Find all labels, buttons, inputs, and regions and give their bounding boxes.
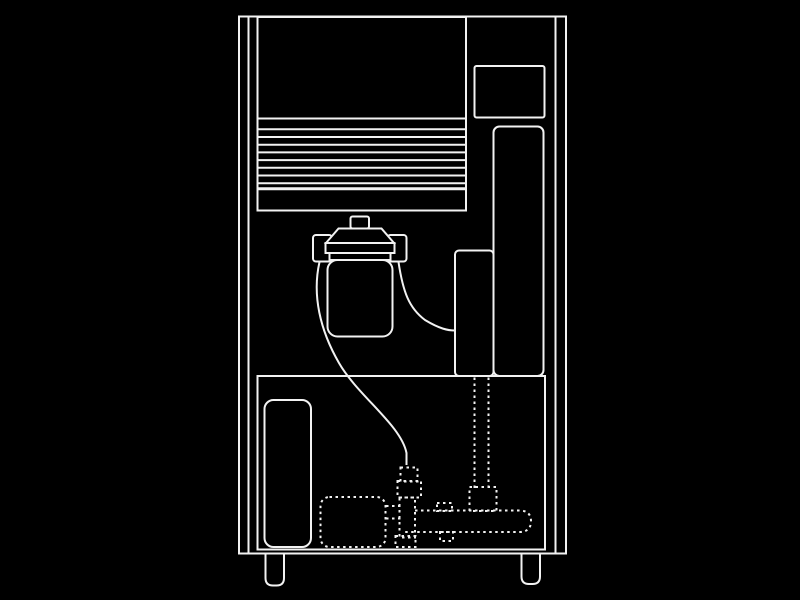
water-filter-collar — [326, 243, 395, 253]
water-filter-head — [326, 229, 394, 244]
front-panel-outline — [258, 17, 467, 211]
left-foot — [266, 554, 285, 586]
water-filter-body — [328, 260, 393, 337]
pump-box — [321, 497, 386, 547]
water-filter-neck — [330, 253, 391, 260]
screenshot-canvas — [0, 0, 800, 600]
lower-compartment-outline — [258, 376, 546, 550]
right-column — [455, 66, 545, 376]
cabinet — [239, 17, 566, 586]
reservoir-box — [455, 251, 494, 377]
filter-outlet-tube — [399, 262, 456, 331]
tee-fitting — [470, 487, 497, 511]
lower-compartment — [258, 376, 546, 550]
water-filter-knob — [351, 217, 370, 229]
machine-diagram — [0, 0, 800, 600]
water-filter — [313, 217, 455, 466]
bottom-left-panel — [265, 400, 312, 547]
right-foot — [522, 554, 541, 584]
top-right-control-box — [475, 66, 545, 118]
dashed-water-circuit — [321, 378, 532, 548]
valve-drain-stub — [440, 532, 453, 541]
right-column-panel — [494, 127, 544, 377]
tube-compression-nut — [401, 468, 418, 482]
valve-drain-stub — [396, 536, 416, 547]
water-manifold-pipe — [403, 511, 531, 533]
front-louver-panel — [258, 17, 467, 211]
inlet-valve-body — [398, 481, 422, 498]
